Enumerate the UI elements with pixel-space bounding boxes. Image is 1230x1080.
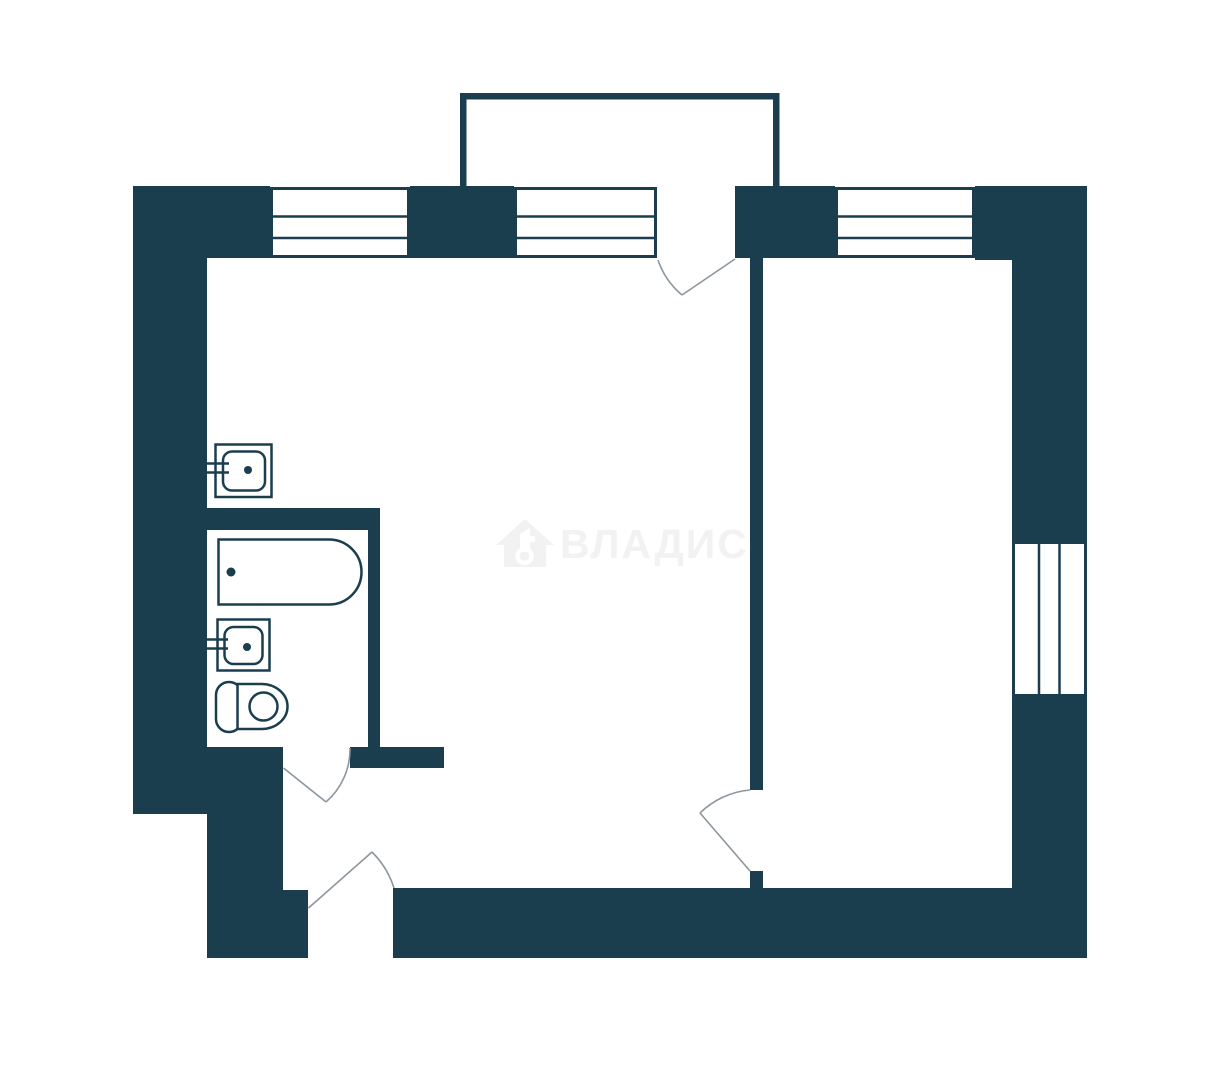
toilet-icon xyxy=(216,682,288,732)
bathroom-door-leaf xyxy=(284,768,327,802)
balcony xyxy=(460,93,780,187)
floor-plan-canvas: ВЛАДИС xyxy=(0,0,1230,1080)
room-door-leaf xyxy=(700,813,750,871)
house-key-icon xyxy=(496,519,554,567)
kitchen-sink-icon xyxy=(207,445,272,498)
top-right-corner-wall xyxy=(975,186,1087,260)
bottom-wall xyxy=(393,888,1087,958)
entry-door-swing xyxy=(372,852,394,888)
top-wall-segment-3 xyxy=(735,186,835,258)
entry-door-leaf xyxy=(309,852,373,908)
entry-side-wall-foot xyxy=(283,890,308,958)
room-right-window xyxy=(1014,543,1086,696)
bathroom-bottom-wall-right xyxy=(350,747,444,768)
room-door xyxy=(700,790,750,871)
bathroom-door-swing xyxy=(326,748,350,802)
room-top-window xyxy=(837,189,974,257)
top-wall-segment-2 xyxy=(410,186,514,258)
watermark-brand-text: ВЛАДИС xyxy=(560,521,749,567)
balcony-side-window xyxy=(516,189,656,257)
balcony-wall-top xyxy=(460,93,780,100)
washbasin-icon xyxy=(207,620,270,671)
left-wall xyxy=(133,186,207,814)
balcony-door-leaf xyxy=(682,259,735,295)
entry-side-wall xyxy=(207,747,283,958)
balcony-door-swing xyxy=(658,260,682,295)
balcony-wall-left xyxy=(460,93,467,187)
room-partition-wall xyxy=(750,258,763,790)
bathroom-top-wall xyxy=(207,508,380,530)
balcony-wall-right xyxy=(773,93,780,187)
kitchen-window xyxy=(272,189,409,257)
right-wall-upper xyxy=(1012,258,1087,542)
room-partition-door-stub xyxy=(750,871,763,888)
watermark: ВЛАДИС xyxy=(496,519,749,567)
bathroom-right-wall xyxy=(368,530,380,747)
bathtub-icon xyxy=(219,540,362,605)
floor-plan-svg: ВЛАДИС xyxy=(0,0,1230,1080)
entry-door xyxy=(309,852,395,908)
bathroom-door xyxy=(284,748,351,802)
room-door-swing xyxy=(700,790,750,813)
balcony-door xyxy=(658,259,735,295)
